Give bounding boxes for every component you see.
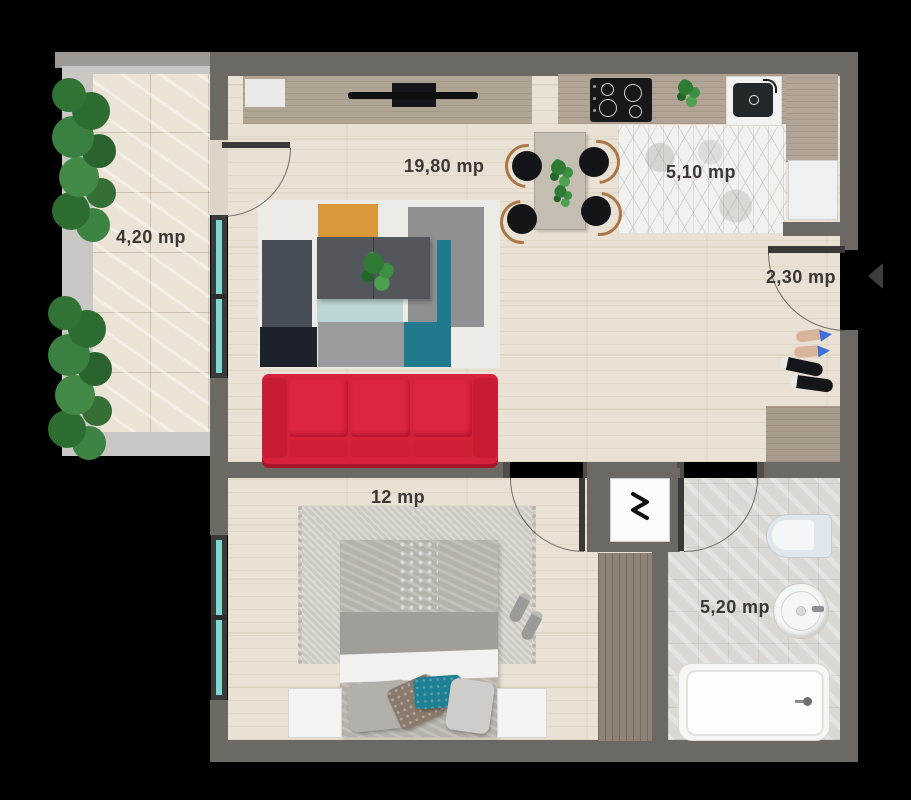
- bedroom-area-label: 12 mp: [371, 487, 425, 508]
- wardrobe: [598, 553, 652, 741]
- door-jamb: [503, 462, 510, 478]
- dining-plant-icon: [555, 186, 567, 198]
- living-room-area-label: 19,80 mp: [404, 156, 484, 177]
- sink-drain: [749, 95, 759, 105]
- sofa-armrest: [262, 378, 287, 458]
- balcony-plant-icon: [52, 78, 86, 112]
- sofa-seat: [351, 440, 410, 457]
- wall-left: [210, 378, 228, 535]
- wall-top: [210, 52, 858, 76]
- balcony-tiles: [93, 74, 210, 432]
- sofa-cushion: [289, 380, 348, 437]
- sofa-cushion: [413, 380, 472, 437]
- washing-machine: [610, 478, 670, 542]
- dining-chair: [581, 196, 611, 226]
- wall-right: [840, 52, 858, 250]
- sofa-seat: [413, 440, 472, 457]
- burner: [601, 83, 614, 96]
- sink-faucet: [763, 79, 777, 93]
- washing-machine-icon: [623, 490, 657, 530]
- rug-patch-black: [260, 327, 317, 367]
- wall-left: [210, 52, 228, 140]
- hallway-area-label: 2,30 mp: [766, 267, 836, 288]
- sink-drain: [796, 606, 806, 616]
- wall-bottom: [210, 740, 858, 762]
- sofa-armrest: [473, 378, 498, 458]
- wall-right: [840, 330, 858, 760]
- nightstand: [288, 688, 342, 738]
- kitchen-area-label: 5,10 mp: [666, 162, 736, 183]
- wall-divider: [210, 462, 510, 478]
- living-window-mullion: [212, 294, 226, 299]
- entry-door: [768, 246, 845, 253]
- bathtub-faucet: [803, 697, 812, 706]
- balcony-plant-icon: [48, 296, 82, 330]
- rug-patch-orange: [318, 204, 378, 237]
- entrance-arrow-icon: [868, 263, 883, 289]
- shoe-flat-toe: [819, 328, 833, 342]
- bathroom-area-label: 5,20 mp: [700, 597, 770, 618]
- toilet-seat: [772, 520, 814, 550]
- fridge: [788, 160, 838, 220]
- kitchen-counter-column: [786, 74, 838, 162]
- bathroom-sink: [773, 583, 829, 639]
- sofa: [262, 374, 498, 464]
- dining-plant-icon: [551, 160, 566, 175]
- burner: [624, 84, 642, 102]
- washer-niche-wall: [587, 462, 610, 552]
- cooktop: [590, 78, 652, 122]
- tv-console: [243, 76, 532, 124]
- cooktop-knob: [593, 97, 596, 100]
- dining-chair: [507, 204, 537, 234]
- coffee-table-plant-icon: [363, 253, 384, 274]
- cooktop-knob: [593, 109, 596, 112]
- bathtub: [678, 663, 830, 741]
- wall-divider: [757, 462, 858, 478]
- pillow: [445, 677, 496, 735]
- tv: [348, 92, 478, 99]
- toilet: [766, 514, 832, 558]
- hall-cabinet: [766, 406, 840, 462]
- door-jamb: [757, 462, 764, 478]
- sofa-seat: [289, 440, 348, 457]
- kitchen-sink: [726, 76, 782, 126]
- wall-kitchen-stub: [783, 222, 858, 236]
- sink-faucet: [812, 606, 824, 612]
- cooktop-knob: [593, 85, 596, 88]
- burner: [629, 105, 642, 118]
- floor-plan-image: 4,20 mp 19,80 mp 5,10 mp 2,30 mp 12 mp 5…: [0, 0, 911, 800]
- bed: [340, 540, 498, 737]
- shoe-flat-toe: [818, 345, 831, 358]
- bathtub-handle: [795, 700, 803, 703]
- burner: [599, 99, 617, 117]
- dining-chair: [579, 147, 609, 177]
- console-tray: [245, 79, 285, 107]
- wall-bedroom-bathroom: [652, 552, 668, 742]
- rug-patch-teal2: [404, 322, 451, 367]
- bedroom-window-mullion: [212, 615, 226, 620]
- balcony-area-label: 4,20 mp: [116, 227, 186, 248]
- sofa-cushion: [351, 380, 410, 437]
- rug-patch-slate: [262, 240, 312, 330]
- dining-chair: [512, 151, 542, 181]
- rug-patch-midgray: [318, 322, 404, 367]
- rug-patch-mint: [317, 297, 403, 323]
- kitchen-plant-icon: [678, 80, 693, 95]
- nightstand: [497, 688, 547, 738]
